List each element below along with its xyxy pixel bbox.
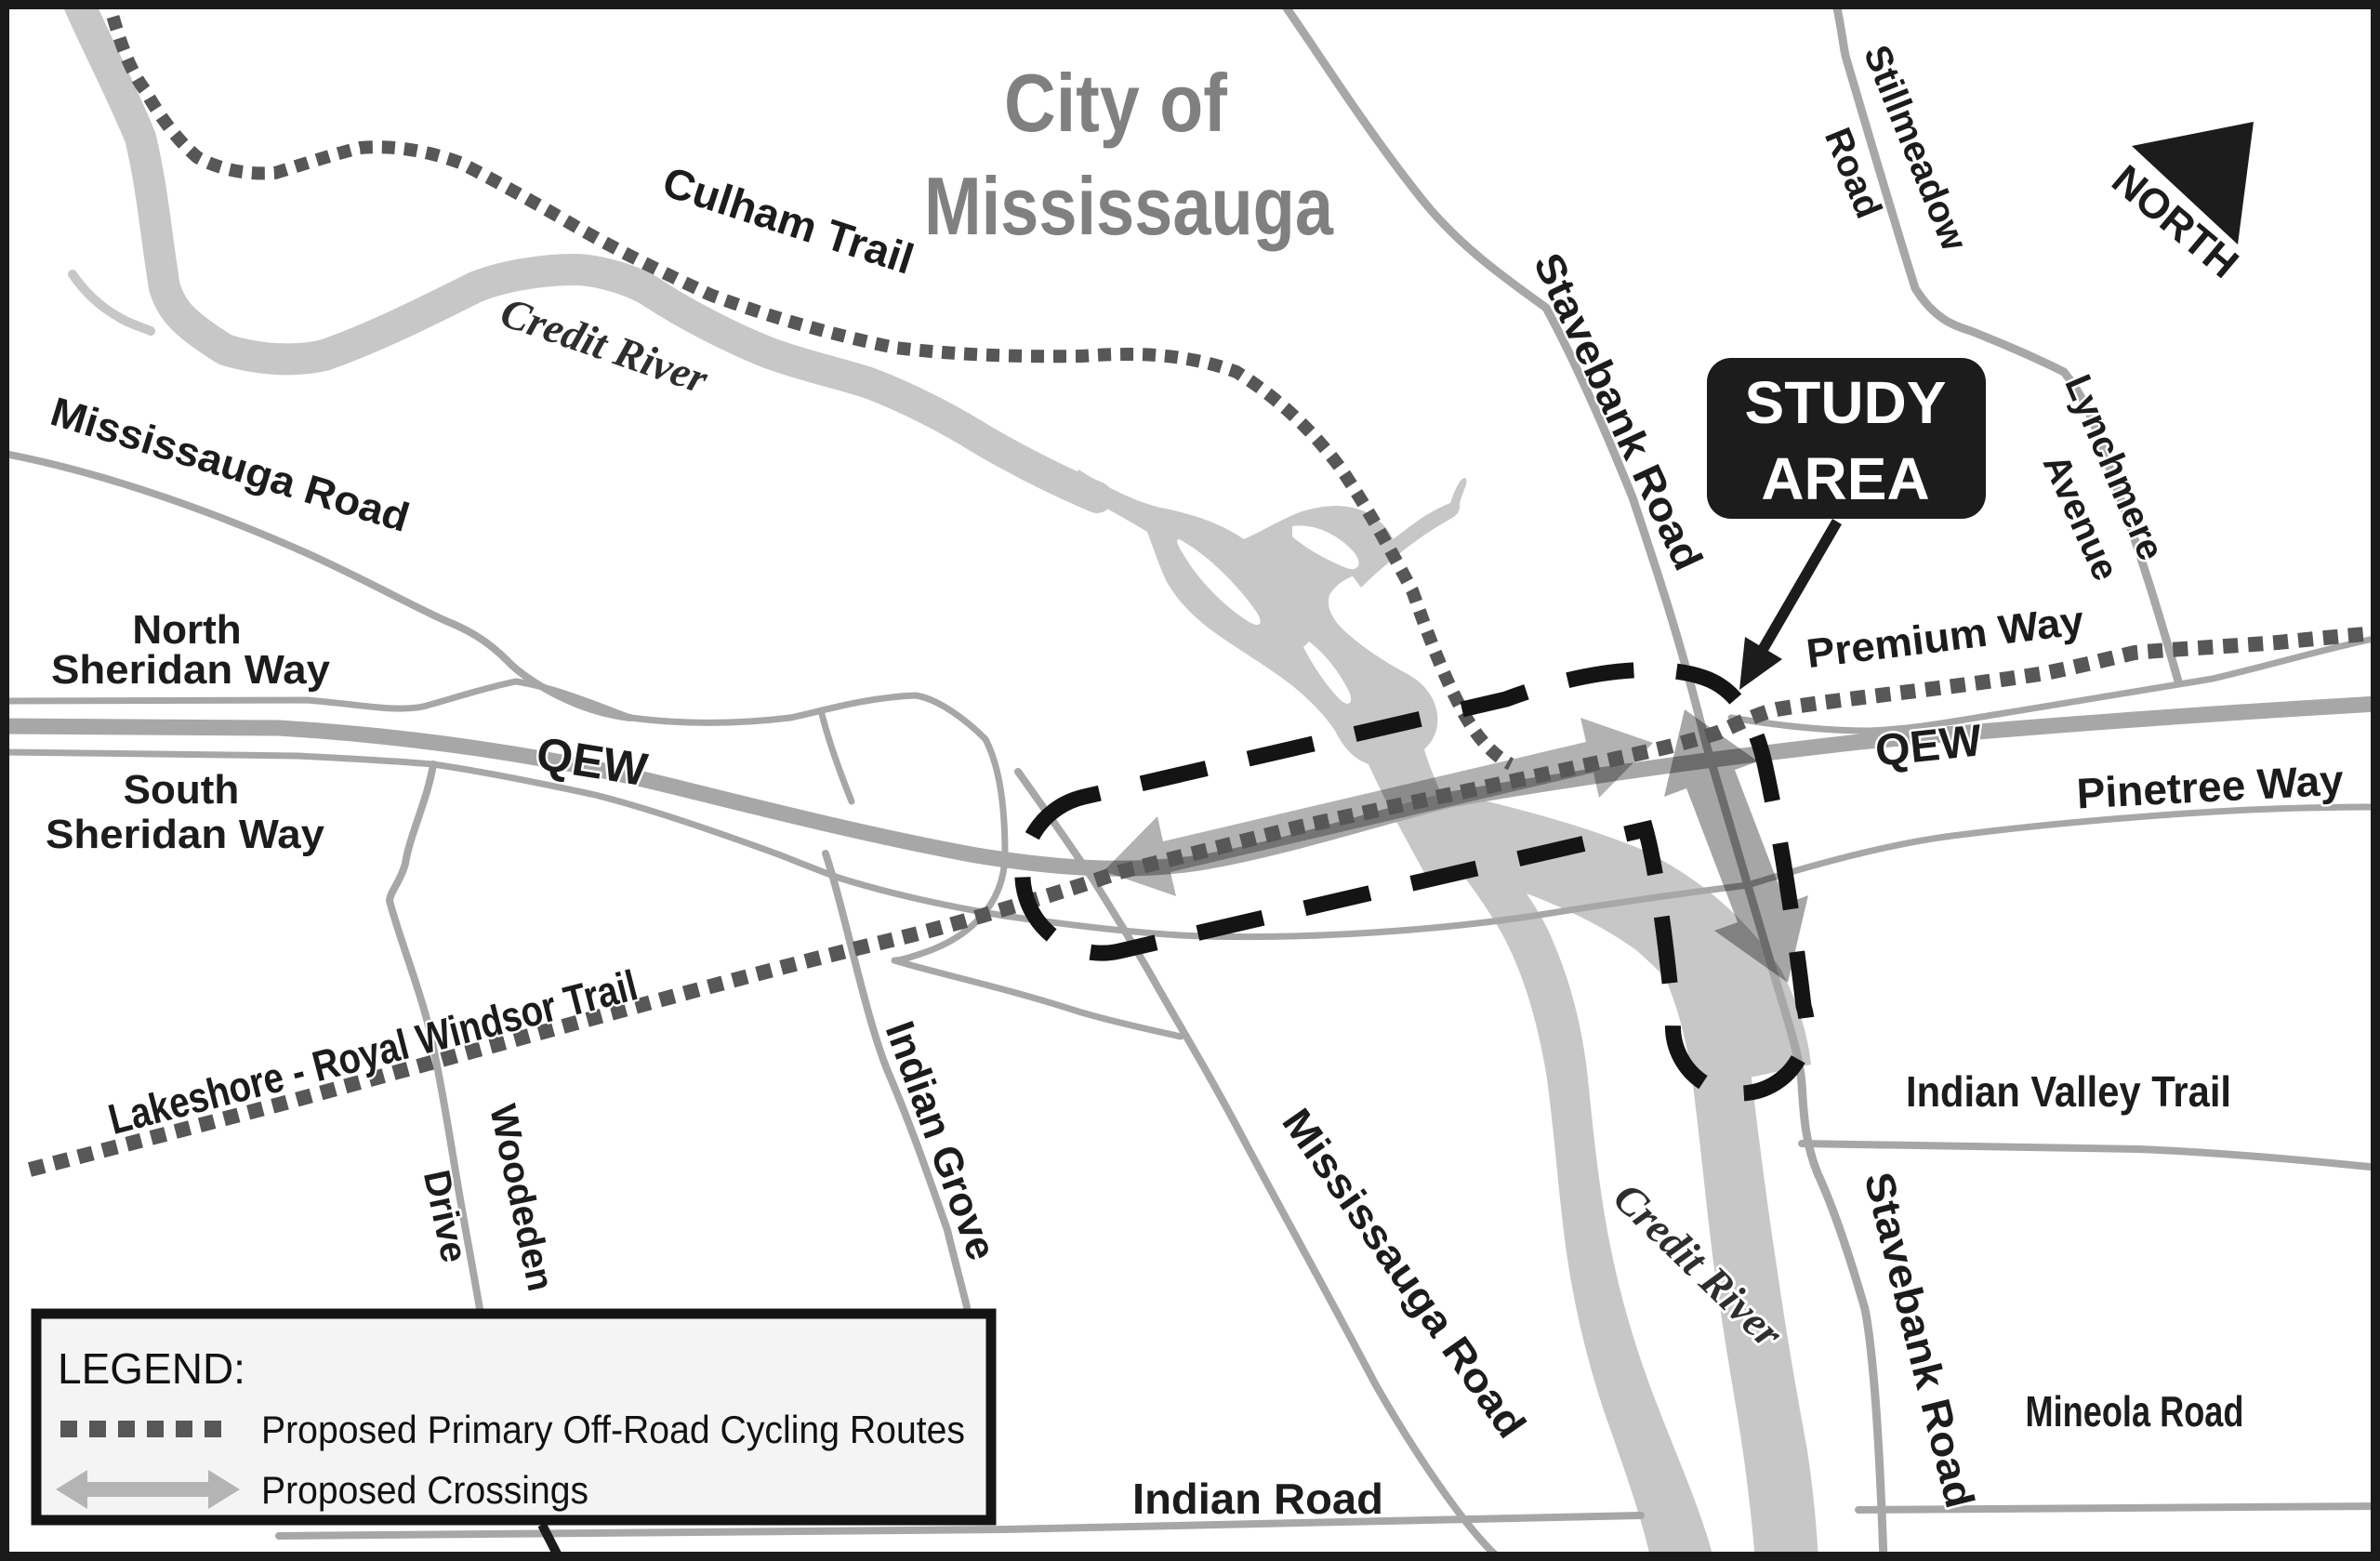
svg-text:AREA: AREA bbox=[1761, 445, 1929, 512]
svg-text:City of: City of bbox=[1004, 57, 1228, 149]
svg-text:LEGEND:: LEGEND: bbox=[58, 1344, 245, 1393]
svg-text:North: North bbox=[132, 607, 241, 653]
svg-text:Sheridan Way: Sheridan Way bbox=[51, 647, 331, 693]
svg-text:Proposed Crossings: Proposed Crossings bbox=[261, 1468, 588, 1512]
svg-text:Proposed Primary Off-Road Cycl: Proposed Primary Off-Road Cycling Routes bbox=[261, 1408, 965, 1451]
svg-text:Sheridan Way: Sheridan Way bbox=[46, 812, 325, 857]
svg-text:Mineola Road: Mineola Road bbox=[2026, 1387, 2244, 1435]
svg-text:South: South bbox=[124, 767, 240, 813]
svg-text:STUDY: STUDY bbox=[1745, 369, 1947, 436]
svg-text:Indian Valley Trail: Indian Valley Trail bbox=[1906, 1067, 2231, 1116]
svg-text:Mississauga: Mississauga bbox=[924, 160, 1334, 252]
svg-text:Indian Road: Indian Road bbox=[1132, 1475, 1383, 1523]
